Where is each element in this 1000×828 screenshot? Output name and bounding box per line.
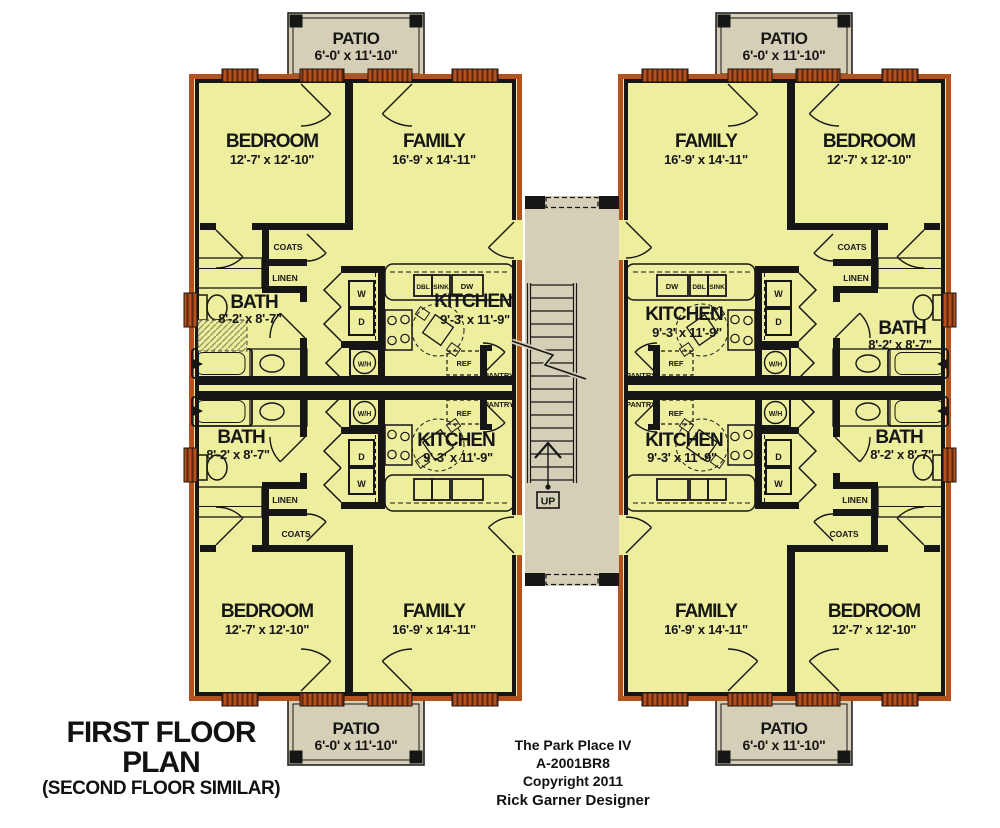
appliance-label-dryer-ul: D — [358, 317, 365, 327]
appliance-label-dbl-ur: DBL — [692, 284, 705, 291]
appliance-label-waterheater-ll: W/H — [358, 411, 372, 418]
appliance-label-washer-ul: W — [357, 289, 366, 299]
room-label-family-lr: FAMILY — [675, 601, 738, 622]
page-title: FIRST FLOOR PLAN — [28, 718, 294, 778]
room-label-bedroom-ul: BEDROOM — [226, 131, 318, 152]
room-dims-kitchen-ul: 9'-3' x 11'-9" — [440, 312, 510, 327]
appliance-label-ref-ul: REF — [457, 359, 472, 368]
appliance-label-ref-ur: REF — [669, 359, 684, 368]
plan-number: A-2001BR8 — [448, 754, 698, 772]
room-dims-bedroom-ll: 12'-7' x 12'-10" — [225, 622, 309, 637]
room-label-bath-ll: BATH — [217, 427, 265, 448]
closet-label-coats-lr: COATS — [829, 529, 858, 539]
appliance-label-dryer-ll: D — [358, 452, 365, 462]
title-block: FIRST FLOOR PLAN (SECOND FLOOR SIMILAR) — [28, 718, 294, 800]
room-label-bath-ur: BATH — [878, 318, 926, 339]
patio-label-top-left: PATIO — [333, 29, 380, 48]
page-subtitle: (SECOND FLOOR SIMILAR) — [28, 778, 294, 800]
room-dims-bedroom-ur: 12'-7' x 12'-10" — [827, 152, 911, 167]
closet-label-linen-ul: LINEN — [272, 273, 298, 283]
room-dims-bath-lr: 8'-2' x 8'-7" — [870, 447, 934, 462]
plan-name: The Park Place IV — [448, 736, 698, 754]
room-dims-family-ll: 16'-9' x 14'-11" — [392, 622, 476, 637]
closet-label-linen-ll: LINEN — [272, 495, 298, 505]
closet-label-coats-ur: COATS — [837, 242, 866, 252]
appliance-label-washer-lr: W — [774, 479, 783, 489]
closet-label-pantry-lr: PANTRY — [626, 400, 656, 409]
room-dims-bath-ur: 8'-2' x 8'-7" — [868, 337, 932, 352]
patio-dims-bottom-left: 6'-0' x 11'-10" — [315, 737, 398, 753]
room-dims-family-ul: 16'-9' x 14'-11" — [392, 152, 476, 167]
patio-label-top-right: PATIO — [761, 29, 808, 48]
appliance-label-ref-lr: REF — [669, 409, 684, 418]
stair-up-label: UP — [541, 496, 556, 508]
room-label-bath-lr: BATH — [875, 427, 923, 448]
patio-label-bottom-left: PATIO — [333, 719, 380, 738]
appliance-label-sink-ur: SINK — [709, 284, 725, 291]
plan-copyright: Copyright 2011 — [448, 772, 698, 790]
closet-label-linen-lr: LINEN — [842, 495, 868, 505]
room-dims-bedroom-ul: 12'-7' x 12'-10" — [230, 152, 314, 167]
patio-label-bottom-right: PATIO — [761, 719, 808, 738]
room-dims-family-lr: 16'-9' x 14'-11" — [664, 622, 748, 637]
room-dims-kitchen-lr: 9'-3' x 11'-9" — [647, 450, 717, 465]
appliance-label-waterheater-lr: W/H — [769, 411, 783, 418]
plan-designer: Rick Garner Designer — [448, 791, 698, 811]
room-dims-kitchen-ll: 9'-3' x 11'-9" — [423, 450, 493, 465]
room-dims-bedroom-lr: 12'-7' x 12'-10" — [832, 622, 916, 637]
appliance-label-waterheater-ul: W/H — [358, 362, 372, 369]
room-dims-bath-ul: 8'-2' x 8'-7" — [218, 311, 282, 326]
room-label-kitchen-ul: KITCHEN — [434, 291, 512, 312]
appliance-label-waterheater-ur: W/H — [769, 362, 783, 369]
closet-label-pantry-ll: PANTRY — [484, 400, 514, 409]
room-dims-kitchen-ur: 9'-3' x 11'-9" — [652, 325, 722, 340]
stairwell — [512, 196, 619, 586]
room-label-family-ur: FAMILY — [675, 131, 738, 152]
room-label-bedroom-lr: BEDROOM — [828, 601, 920, 622]
patio-dims-bottom-right: 6'-0' x 11'-10" — [743, 737, 826, 753]
appliance-label-washer-ll: W — [357, 479, 366, 489]
room-label-bedroom-ur: BEDROOM — [823, 131, 915, 152]
room-label-kitchen-ur: KITCHEN — [645, 304, 723, 325]
appliance-label-ref-ll: REF — [457, 409, 472, 418]
room-label-bedroom-ll: BEDROOM — [221, 601, 313, 622]
appliance-label-dbl-ul: DBL — [416, 284, 429, 291]
patio-dims-top-right: 6'-0' x 11'-10" — [743, 47, 826, 63]
appliance-label-dryer-ur: D — [775, 317, 782, 327]
closet-label-coats-ul: COATS — [273, 242, 302, 252]
closet-label-pantry-ur: PANTRY — [626, 371, 656, 380]
appliance-label-dw-ur: DW — [666, 282, 679, 291]
appliance-label-dw-ul: DW — [461, 282, 474, 291]
closet-label-pantry-ul: PANTRY — [484, 371, 514, 380]
appliance-label-washer-ur: W — [774, 289, 783, 299]
room-label-kitchen-ll: KITCHEN — [417, 430, 495, 451]
room-label-kitchen-lr: KITCHEN — [645, 430, 723, 451]
closet-label-linen-ur: LINEN — [843, 273, 869, 283]
room-dims-family-ur: 16'-9' x 14'-11" — [664, 152, 748, 167]
floor-plan-drawing: BEDROOM12'-7' x 12'-10"FAMILY16'-9' x 14… — [0, 0, 1000, 828]
appliance-label-sink-ul: SINK — [433, 284, 449, 291]
room-label-bath-ul: BATH — [230, 292, 278, 313]
closet-label-coats-ll: COATS — [281, 529, 310, 539]
room-dims-bath-ll: 8'-2' x 8'-7" — [206, 447, 270, 462]
room-label-family-ll: FAMILY — [403, 601, 466, 622]
floor-plan-page: BEDROOM12'-7' x 12'-10"FAMILY16'-9' x 14… — [0, 0, 1000, 828]
plan-footer: The Park Place IV A-2001BR8 Copyright 20… — [448, 736, 698, 810]
appliance-label-dryer-lr: D — [775, 452, 782, 462]
patio-dims-top-left: 6'-0' x 11'-10" — [315, 47, 398, 63]
room-label-family-ul: FAMILY — [403, 131, 466, 152]
